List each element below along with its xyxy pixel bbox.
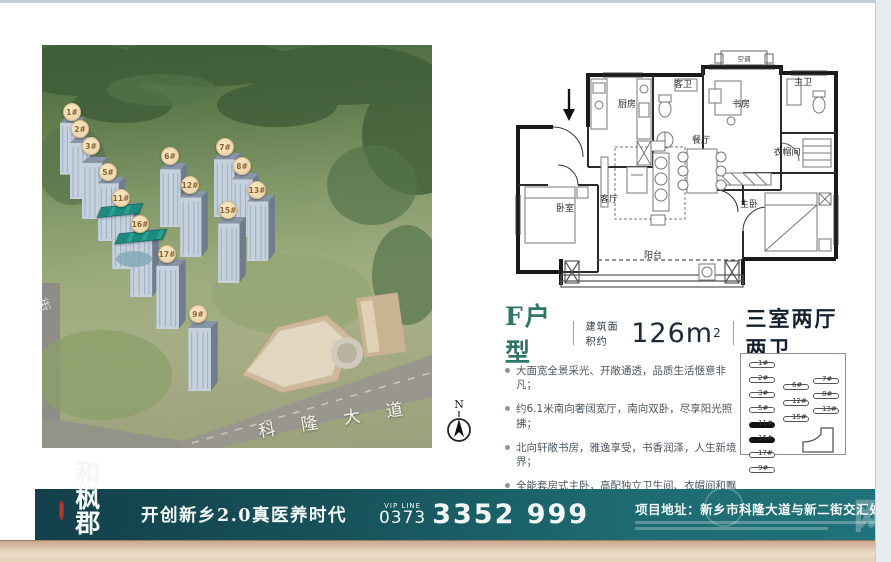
aerial-scene xyxy=(42,45,432,448)
sitemap-building-highlighted: 16# xyxy=(749,437,775,448)
disclaimer-line xyxy=(635,527,828,530)
building-badge: 9# xyxy=(189,305,207,323)
compass-north-label: N xyxy=(441,398,477,411)
phone-prefix: 0373 xyxy=(379,510,426,527)
sitemap-building: 12# xyxy=(783,400,809,411)
building-badge: 2# xyxy=(71,120,89,138)
project-address: 项目地址：新乡市科隆大道与新二街交汇处 xyxy=(635,499,882,518)
floor-plan: 空调 xyxy=(503,45,848,300)
area-prefix: 建筑面积约 xyxy=(586,318,628,348)
building-badge: 12# xyxy=(181,176,199,194)
sitemap-building: 13# xyxy=(813,408,839,419)
bullet-icon xyxy=(505,445,510,450)
building-badge: 15# xyxy=(219,201,237,219)
vip-phone: VIP LINE 0373 3352 999 xyxy=(379,501,589,528)
phone-number: 3352 999 xyxy=(432,501,589,528)
building-badge: 5# xyxy=(99,163,117,181)
room-label-guest-bath: 客卫 xyxy=(674,78,692,90)
room-label-living: 客厅 xyxy=(600,193,618,205)
compass-glyph xyxy=(444,411,474,445)
brand-name: 和枫郡 xyxy=(71,461,109,536)
divider xyxy=(733,321,734,345)
aerial-rendering: 1# 2# 3# 5# 6# 7# 8# 11# 12# 13# 15# 16#… xyxy=(42,45,432,448)
sitemap-building: 8# xyxy=(813,393,839,404)
room-label-bedroom: 卧室 xyxy=(556,202,574,214)
unit-name: F户型 xyxy=(505,297,561,369)
room-label-ac: 空调 xyxy=(738,54,751,63)
room-label-kitchen: 厨房 xyxy=(618,98,636,110)
building-badge: 11# xyxy=(112,189,130,207)
bullet-icon xyxy=(505,406,510,411)
room-label-dining: 餐厅 xyxy=(692,134,710,146)
divider xyxy=(573,321,574,345)
seal-icon xyxy=(59,501,64,520)
building-badge: 6# xyxy=(161,147,179,165)
sitemap-building: 6# xyxy=(783,384,809,395)
feature-item: 约6.1米南向奢阔宽厅，南向双卧，尽享阳光照拂； xyxy=(505,402,743,430)
disclaimer-line xyxy=(635,521,882,524)
building-badge: 8# xyxy=(233,157,251,175)
area-superscript: 2 xyxy=(713,326,721,340)
feature-text: 约6.1米南向奢阔宽厅，南向双卧，尽享阳光照拂； xyxy=(516,402,743,430)
room-label-study: 书房 xyxy=(732,98,750,110)
building-badge: 3# xyxy=(82,137,100,155)
room-label-balcony: 阳台 xyxy=(644,249,662,261)
sitemap-building: 3# xyxy=(749,392,775,403)
bullet-icon xyxy=(505,483,510,488)
sitemap-commercial-block xyxy=(799,426,837,456)
photo-bottom-edge xyxy=(0,540,875,562)
room-label-master-bath: 主卫 xyxy=(794,76,812,88)
photo-top-edge xyxy=(0,0,891,3)
brand-banner: 和枫郡 领创5U医养新典范 开创新乡2.0真医养时代 VIP LINE 0373… xyxy=(35,489,875,540)
room-label-cloakroom: 衣帽间 xyxy=(773,146,800,158)
sitemap-building: 5# xyxy=(749,407,775,418)
project-address-block: 项目地址：新乡市科隆大道与新二街交汇处 网 xyxy=(635,499,882,530)
building-badge: 7# xyxy=(216,138,234,156)
sitemap-building: 2# xyxy=(749,377,775,388)
banner-slogan: 开创新乡2.0真医养时代 xyxy=(141,502,347,527)
sitemap-building: 1# xyxy=(749,362,775,373)
feature-text: 大面宽全景采光、开敞通透，品质生活惬意非凡； xyxy=(516,364,743,392)
mini-site-map: 1# 2# 3# 5# 11# 16# 17# 9# 6# 12# 15# 7#… xyxy=(740,353,846,455)
bullet-icon xyxy=(505,368,510,373)
photo-right-edge xyxy=(875,0,891,562)
feature-item: 大面宽全景采光、开敞通透，品质生活惬意非凡； xyxy=(505,364,743,392)
sitemap-building: 9# xyxy=(749,467,775,478)
sitemap-building: 17# xyxy=(749,452,775,463)
sitemap-building: 7# xyxy=(813,378,839,389)
building-badge: 17# xyxy=(158,245,176,263)
entry-arrow-icon xyxy=(563,89,575,121)
feature-item: 北向轩敞书房，雅逸享受，书香润泽，人生新境界； xyxy=(505,441,743,469)
flyer-page: 1# 2# 3# 5# 6# 7# 8# 11# 12# 13# 15# 16#… xyxy=(0,0,891,562)
area-value: 126m xyxy=(631,318,713,349)
north-compass-icon: N xyxy=(441,398,477,452)
building-badge: 16# xyxy=(131,215,149,233)
building-badge: 1# xyxy=(63,103,81,121)
unit-title-row: F户型 建筑面积约 126m2 三室两厅两卫 xyxy=(505,314,850,352)
room-label-master-bedroom: 主卧 xyxy=(740,198,758,210)
building-badge: 13# xyxy=(248,181,266,199)
feature-text: 北向轩敞书房，雅逸享受，书香润泽，人生新境界； xyxy=(516,441,743,469)
sitemap-building-highlighted: 11# xyxy=(749,422,775,433)
